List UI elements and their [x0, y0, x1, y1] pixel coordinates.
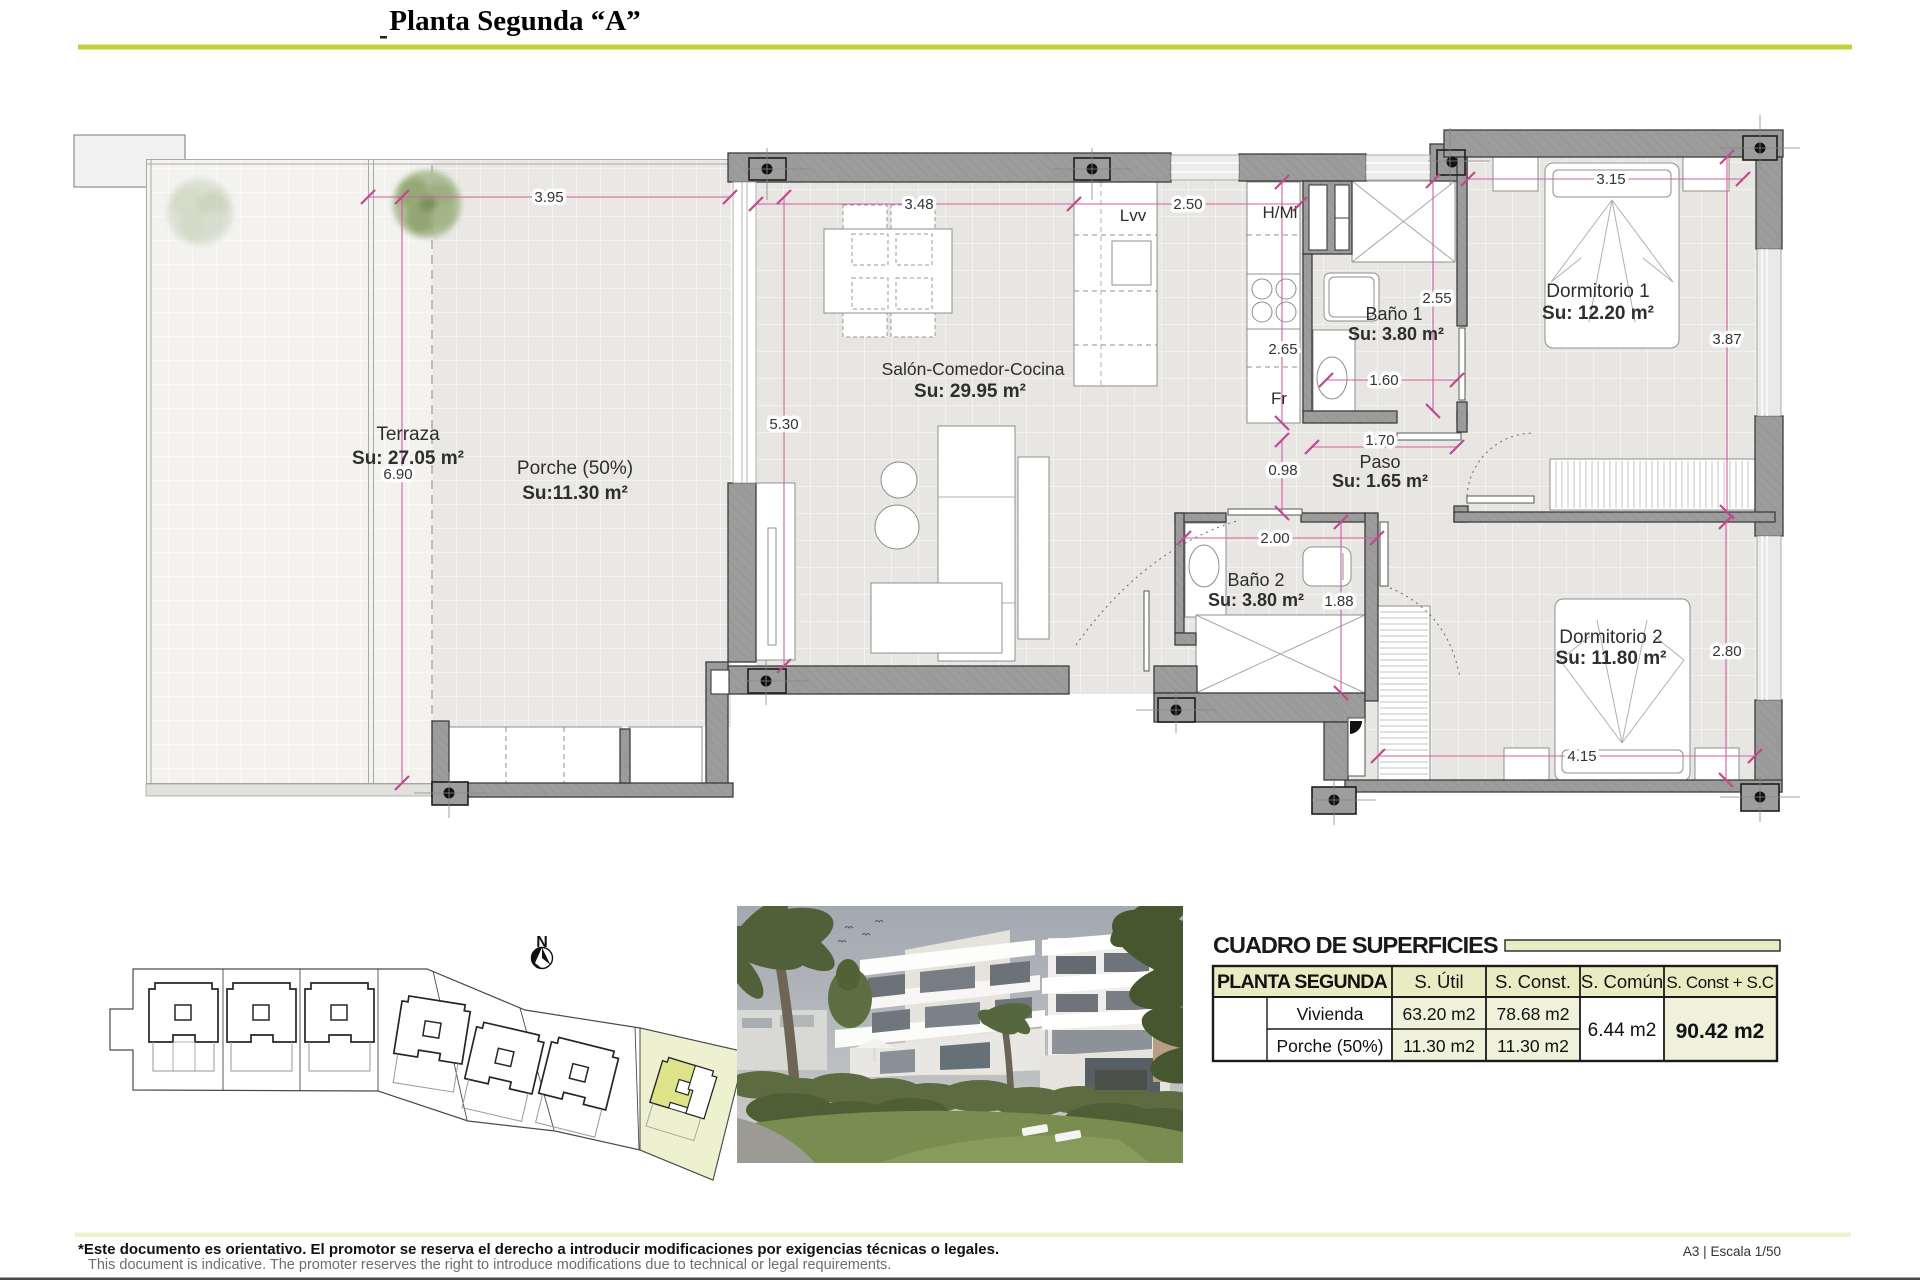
- svg-text:Lvv: Lvv: [1120, 206, 1147, 225]
- svg-text:S. Común: S. Común: [1581, 971, 1663, 992]
- svg-text:A3 | Escala 1/50: A3 | Escala 1/50: [1683, 1244, 1781, 1259]
- svg-text:*Este documento es orientativo: *Este documento es orientativo. El promo…: [78, 1241, 999, 1258]
- svg-text:Su:11.30 m²: Su:11.30 m²: [522, 483, 628, 504]
- svg-text:Porche (50%): Porche (50%): [1277, 1036, 1384, 1056]
- svg-text:3.87: 3.87: [1712, 331, 1741, 348]
- svg-text:2.65: 2.65: [1268, 341, 1297, 358]
- svg-text:Su: 27.05 m²: Su: 27.05 m²: [352, 448, 464, 469]
- svg-text:Baño 1: Baño 1: [1365, 304, 1422, 324]
- svg-text:63.20 m2: 63.20 m2: [1403, 1004, 1476, 1024]
- svg-text:1.88: 1.88: [1324, 593, 1353, 610]
- svg-text:Fr: Fr: [1271, 389, 1287, 408]
- svg-text:1.70: 1.70: [1365, 432, 1394, 449]
- svg-text:11.30 m2: 11.30 m2: [1403, 1036, 1475, 1056]
- svg-text:This document is indicative. T: This document is indicative. The promote…: [88, 1257, 891, 1273]
- svg-text:Planta Segunda “A”: Planta Segunda “A”: [389, 5, 640, 37]
- svg-text:Su: 3.80 m²: Su: 3.80 m²: [1348, 324, 1444, 344]
- svg-text:Baño 2: Baño 2: [1227, 570, 1284, 590]
- svg-text:0.98: 0.98: [1268, 462, 1297, 479]
- svg-text:PLANTA SEGUNDA: PLANTA SEGUNDA: [1217, 971, 1388, 993]
- svg-text:Su: 3.80 m²: Su: 3.80 m²: [1208, 590, 1304, 610]
- svg-text:3.15: 3.15: [1596, 171, 1625, 188]
- svg-text:CUADRO DE SUPERFICIES: CUADRO DE SUPERFICIES: [1213, 932, 1498, 958]
- svg-text:Porche (50%): Porche (50%): [517, 458, 633, 479]
- svg-text:78.68 m2: 78.68 m2: [1497, 1004, 1570, 1024]
- svg-text:Salón-Comedor-Cocina: Salón-Comedor-Cocina: [882, 359, 1065, 379]
- svg-text:Dormitorio 1: Dormitorio 1: [1546, 281, 1649, 302]
- svg-text:1.60: 1.60: [1369, 372, 1398, 389]
- svg-text:11.30 m2: 11.30 m2: [1497, 1036, 1569, 1056]
- svg-text:H/Mi: H/Mi: [1263, 203, 1298, 222]
- svg-text:Paso: Paso: [1359, 452, 1400, 472]
- svg-text:4.15: 4.15: [1567, 748, 1596, 765]
- svg-text:S. Const + S.C: S. Const + S.C: [1666, 973, 1773, 992]
- svg-text:Terraza: Terraza: [376, 424, 440, 445]
- svg-text:S. Útil: S. Útil: [1414, 971, 1463, 992]
- svg-text:90.42 m2: 90.42 m2: [1676, 1020, 1765, 1043]
- svg-text:2.55: 2.55: [1422, 290, 1451, 307]
- svg-text:Dormitorio 2: Dormitorio 2: [1559, 627, 1662, 648]
- svg-text:Vivienda: Vivienda: [1297, 1004, 1364, 1024]
- svg-text:Su: 29.95 m²: Su: 29.95 m²: [914, 381, 1026, 402]
- svg-text:6.44 m2: 6.44 m2: [1588, 1020, 1657, 1041]
- svg-text:Su: 12.20 m²: Su: 12.20 m²: [1542, 303, 1654, 324]
- svg-text:S. Const.: S. Const.: [1495, 971, 1571, 992]
- svg-text:5.30: 5.30: [769, 416, 798, 433]
- svg-text:2.50: 2.50: [1173, 196, 1202, 213]
- svg-text:2.80: 2.80: [1712, 643, 1741, 660]
- svg-text:3.95: 3.95: [534, 189, 563, 206]
- svg-text:3.48: 3.48: [904, 196, 933, 213]
- svg-text:Su: 1.65 m²: Su: 1.65 m²: [1332, 471, 1428, 491]
- svg-text:Su: 11.80 m²: Su: 11.80 m²: [1556, 648, 1667, 669]
- svg-text:2.00: 2.00: [1260, 530, 1289, 547]
